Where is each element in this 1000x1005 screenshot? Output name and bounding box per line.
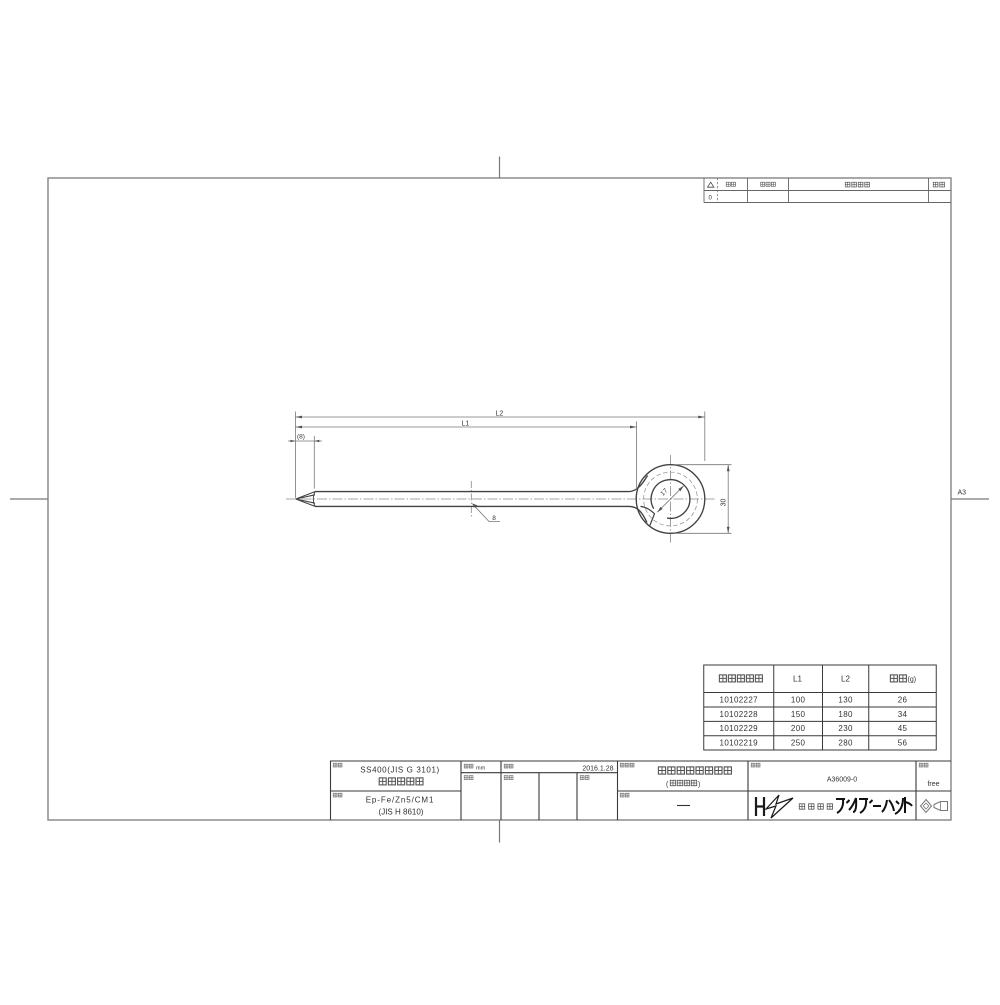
svg-text:150: 150 — [791, 710, 806, 719]
svg-text:SS400(JIS G 3101): SS400(JIS G 3101) — [360, 766, 440, 775]
svg-text:56: 56 — [898, 739, 908, 748]
svg-text:200: 200 — [791, 724, 806, 733]
svg-text:A36009-0: A36009-0 — [827, 777, 857, 784]
svg-text:280: 280 — [838, 739, 853, 748]
svg-text:(8): (8) — [297, 434, 305, 441]
svg-text:(JIS H 8610): (JIS H 8610) — [379, 808, 424, 817]
svg-text:10102228: 10102228 — [720, 710, 759, 719]
svg-text:L1: L1 — [462, 421, 470, 428]
svg-text:230: 230 — [838, 724, 853, 733]
svg-text:8: 8 — [492, 515, 496, 522]
svg-text:L2: L2 — [841, 675, 850, 684]
svg-text:10102229: 10102229 — [720, 724, 759, 733]
svg-text:L2: L2 — [496, 411, 504, 418]
svg-text:45: 45 — [898, 724, 908, 733]
svg-text:180: 180 — [838, 710, 853, 719]
svg-text:L1: L1 — [793, 675, 802, 684]
svg-text:): ) — [698, 782, 700, 789]
svg-text:mm: mm — [476, 766, 486, 772]
svg-text:34: 34 — [898, 710, 908, 719]
svg-text:26: 26 — [898, 696, 908, 705]
svg-text:30: 30 — [721, 499, 728, 507]
svg-text:100: 100 — [791, 696, 806, 705]
svg-text:Ep-Fe/Zn5/CM1: Ep-Fe/Zn5/CM1 — [366, 796, 435, 805]
svg-text:(g): (g) — [908, 677, 917, 684]
svg-text:250: 250 — [791, 739, 806, 748]
svg-text:10102227: 10102227 — [720, 696, 759, 705]
svg-text:2016.1.28: 2016.1.28 — [582, 766, 613, 773]
svg-text:free: free — [927, 781, 939, 788]
svg-text:130: 130 — [838, 696, 853, 705]
svg-text:10102219: 10102219 — [720, 739, 759, 748]
svg-text:A3: A3 — [958, 490, 967, 497]
